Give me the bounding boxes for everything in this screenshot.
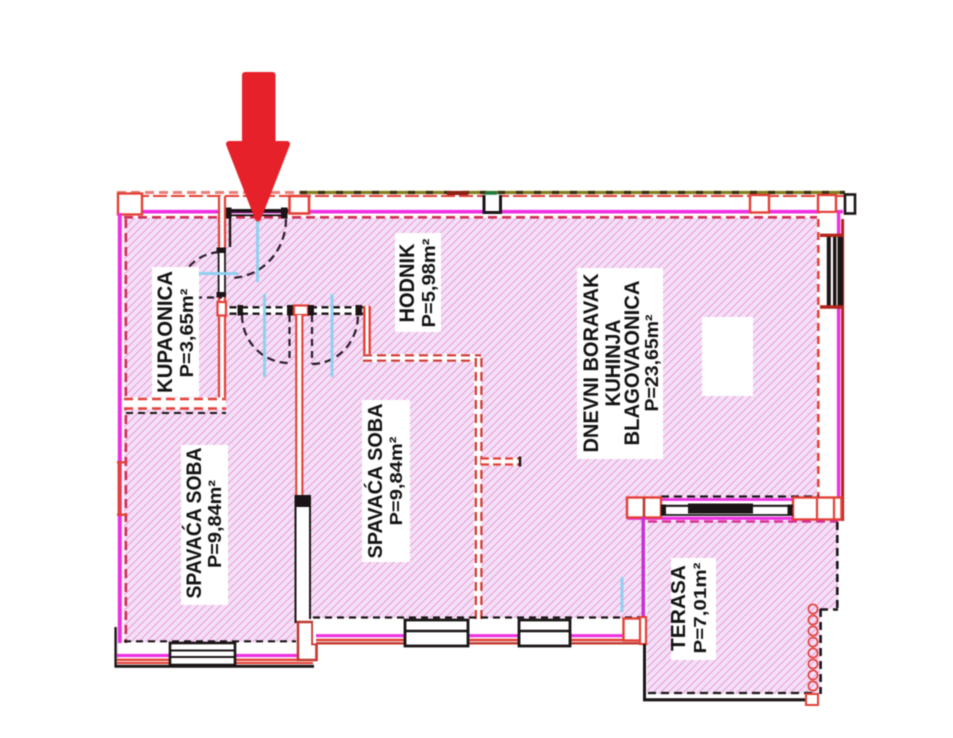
svg-text:HODNIK: HODNIK (396, 244, 419, 323)
svg-text:SPAVAĆA SOBA: SPAVAĆA SOBA (363, 404, 387, 559)
svg-text:P=7,01m²: P=7,01m² (690, 562, 710, 653)
svg-text:BLAGOVAONICA: BLAGOVAONICA (621, 281, 644, 446)
svg-text:P=5,98m²: P=5,98m² (419, 239, 439, 328)
svg-text:KUPAONICA: KUPAONICA (154, 271, 177, 393)
svg-text:P=3,65m²: P=3,65m² (177, 289, 197, 378)
svg-text:P=23,65m²: P=23,65m² (642, 314, 662, 411)
svg-text:SPAVAĆA SOBA: SPAVAĆA SOBA (182, 448, 206, 599)
svg-text:TERASA: TERASA (668, 565, 690, 651)
svg-text:P=9,84m²: P=9,84m² (386, 436, 406, 525)
svg-text:P=9,84m²: P=9,84m² (205, 480, 225, 568)
svg-text:DNEVNI BORAVAK: DNEVNI BORAVAK (580, 274, 603, 453)
